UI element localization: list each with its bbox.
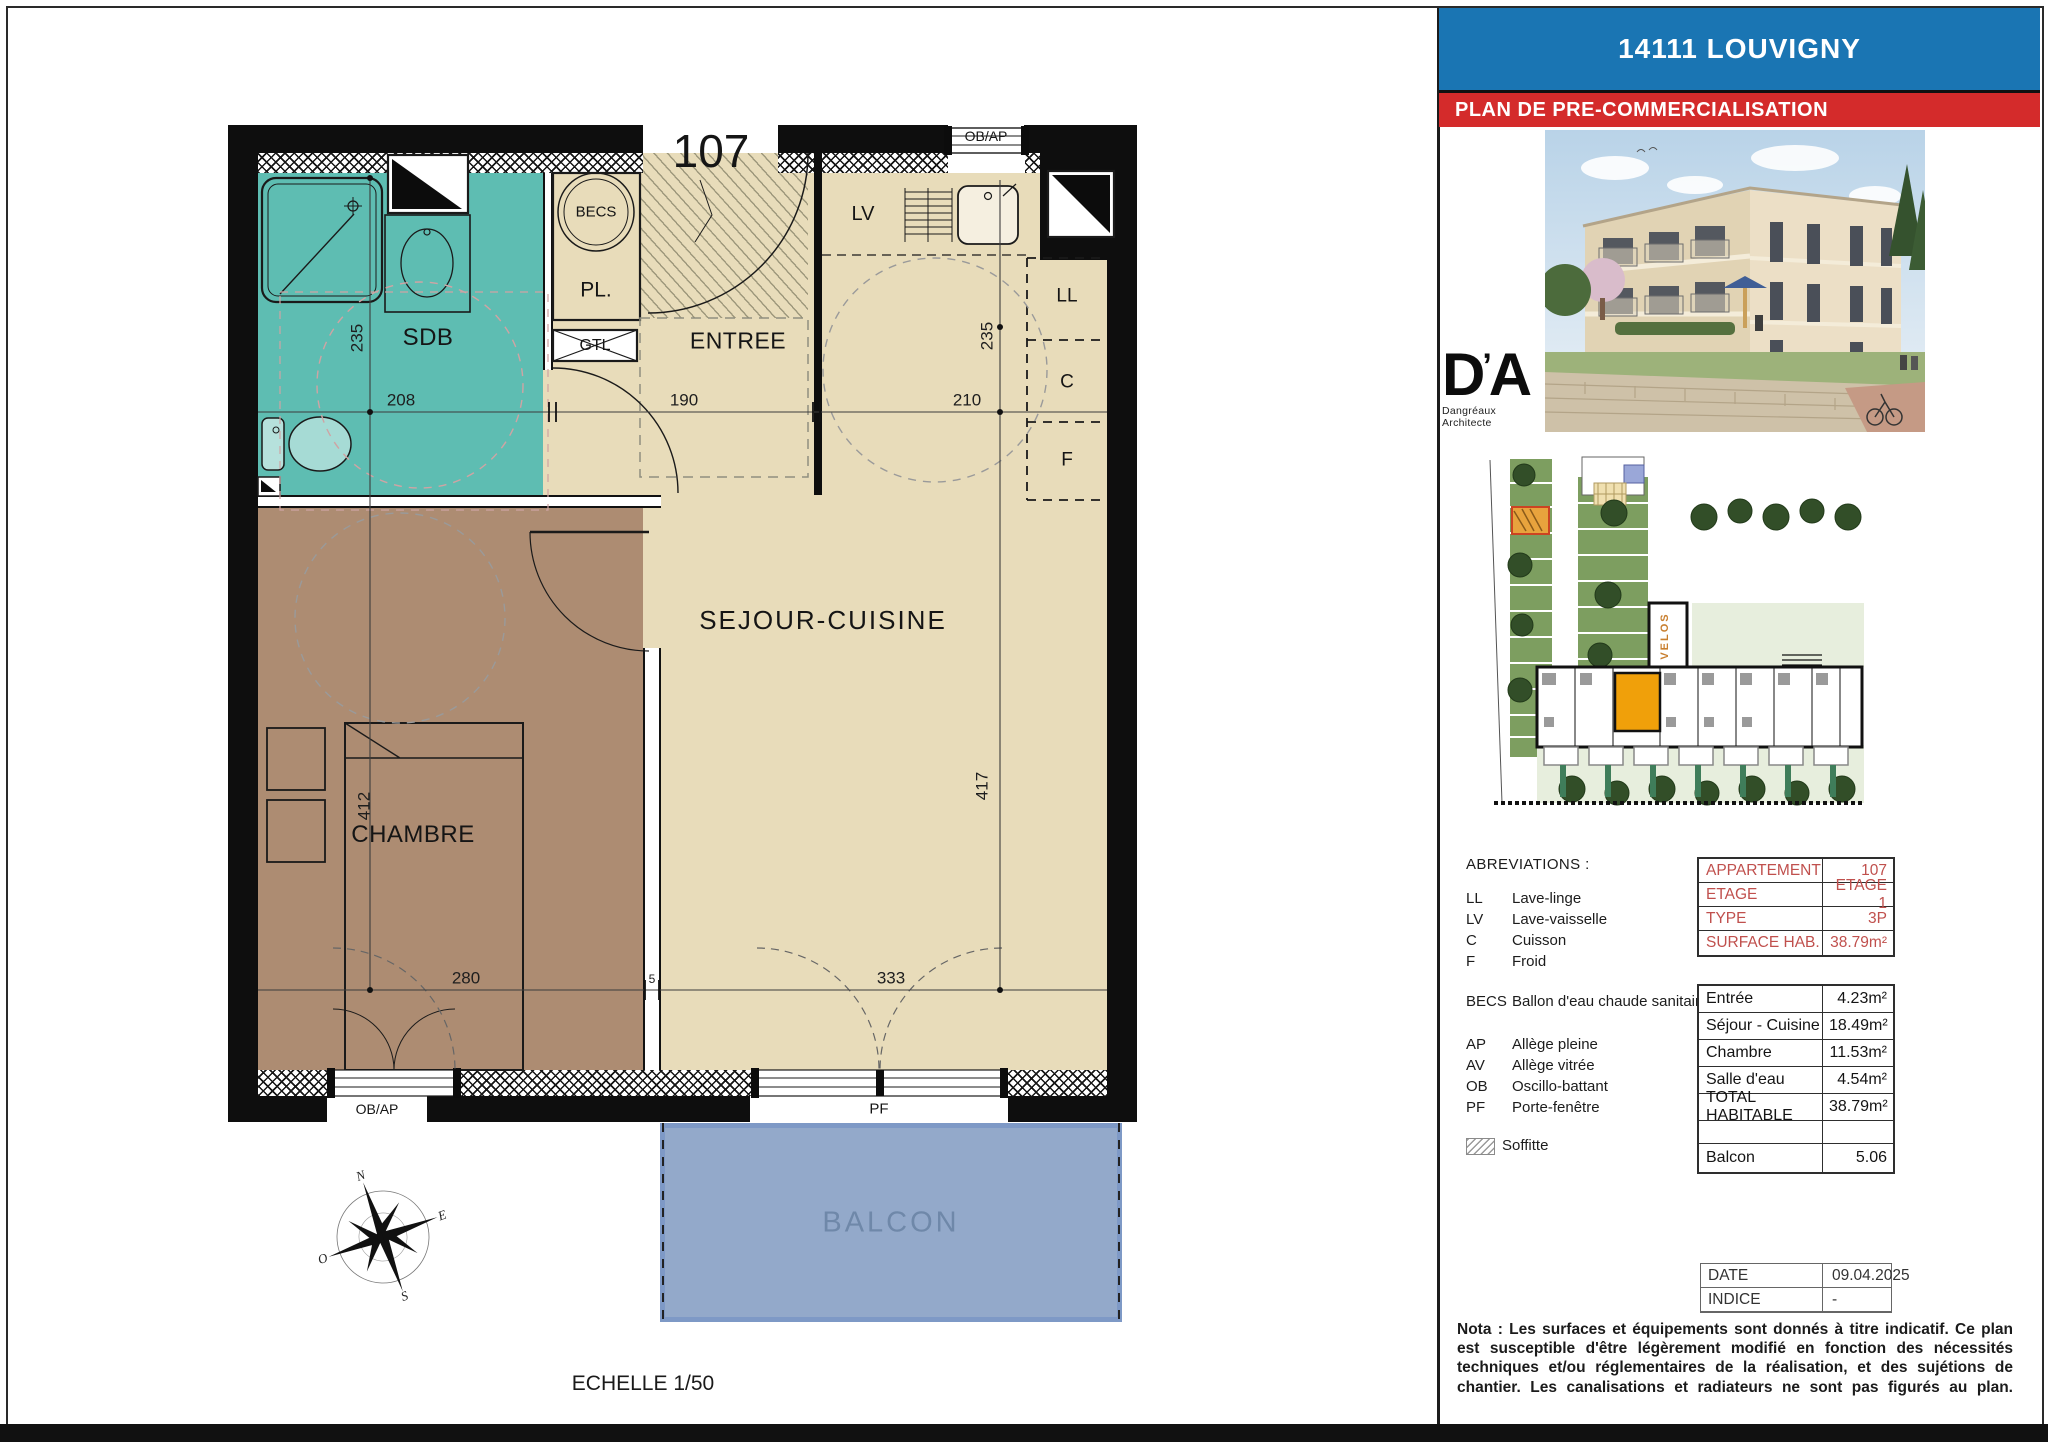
project-title-bar: 14111 LOUVIGNY: [1439, 8, 2040, 90]
wall-right: [1107, 125, 1137, 1122]
dim-chambre-height: 412: [356, 792, 373, 820]
svg-text:N: N: [353, 1167, 368, 1184]
soffitte-hatch-area: [640, 153, 808, 318]
dim-partition: 5: [649, 973, 656, 985]
gtl-label: GTL: [579, 338, 610, 354]
room-label-chambre: CHAMBRE: [351, 823, 475, 847]
abbr-c: CCuisson: [1466, 932, 1566, 949]
table-row: TYPE3P: [1699, 907, 1893, 931]
table-row: Entrée4.23m²: [1699, 986, 1893, 1013]
nota-disclaimer: Nota : Les surfaces et équipements sont …: [1457, 1320, 2013, 1397]
partition-sdb-chambre: [258, 495, 661, 508]
soffitte-legend-label: Soffitte: [1502, 1137, 1548, 1154]
soffitte-hatch-icon: [1466, 1138, 1495, 1155]
building-photo: [1545, 130, 1925, 432]
dim-kitchen-height: 235: [979, 322, 996, 350]
becs-label: BECS: [576, 205, 617, 220]
ll-label: LL: [1056, 287, 1077, 306]
table-row: Balcon5.06: [1699, 1144, 1893, 1172]
froid-label: F: [1061, 451, 1073, 470]
project-title: 14111 LOUVIGNY: [1618, 33, 1861, 65]
abbreviations-heading: ABREVIATIONS :: [1466, 856, 1590, 873]
room-label-sejour: SEJOUR-CUISINE: [699, 607, 947, 633]
svg-text:O: O: [316, 1250, 331, 1268]
wall-left: [228, 125, 258, 1122]
insulation-hatch: [1002, 1070, 1107, 1096]
plan-page: BALCON: [0, 0, 2048, 1442]
wall-top: [778, 125, 950, 153]
plan-subtitle: PLAN DE PRE-COMMERCIALISATION: [1455, 99, 1828, 122]
site-plan: VELOS: [1482, 455, 1882, 807]
svg-text:VELOS: VELOS: [1659, 612, 1671, 659]
table-row: ETAGEETAGE 1: [1699, 883, 1893, 907]
date-indice-table: DATE09.04.2025 INDICE-: [1700, 1263, 1892, 1313]
room-sdb-floor: [258, 173, 543, 495]
table-row: TOTAL HABITABLE38.79m²: [1699, 1094, 1893, 1121]
abbr-becs: BECSBallon d'eau chaude sanitaire: [1466, 993, 1708, 1010]
dim-sejour-height: 417: [974, 772, 991, 800]
balcony-label: BALCON: [822, 1208, 959, 1237]
dim-chambre-width: 280: [452, 970, 480, 987]
svg-text:E: E: [435, 1207, 449, 1224]
dim-sejour-width: 210: [953, 392, 981, 409]
partition-chambre-sejour: [643, 648, 661, 1070]
abbr-av: AVAllège vitrée: [1466, 1057, 1595, 1074]
window-label-obap-bottom: OB/AP: [356, 1102, 399, 1116]
abbr-pf: PFPorte-fenêtre: [1466, 1099, 1600, 1116]
surfaces-table: Entrée4.23m² Séjour - Cuisine18.49m² Cha…: [1697, 984, 1895, 1174]
table-row: SURFACE HAB.38.79m²: [1699, 931, 1893, 955]
logo-name: Dangréaux Architecte: [1442, 405, 1546, 429]
table-row: Séjour - Cuisine18.49m²: [1699, 1013, 1893, 1040]
page-bottom-bar: [0, 1424, 2048, 1442]
table-row: Chambre11.53m²: [1699, 1040, 1893, 1067]
abbr-f: FFroid: [1466, 953, 1546, 970]
room-chambre-floor: [258, 508, 643, 1070]
panel-divider: [1437, 8, 1440, 1424]
table-row: DATE09.04.2025: [1701, 1264, 1891, 1288]
abbr-ll: LLLave-linge: [1466, 890, 1581, 907]
compass-rose-icon: N E S O: [313, 1167, 453, 1307]
abbr-ob: OBOscillo-battant: [1466, 1078, 1608, 1095]
cuisson-label: C: [1060, 373, 1074, 392]
partition-sdb-entree: [543, 173, 553, 370]
window-label-obap-top: OB/AP: [965, 129, 1008, 143]
scale-label: ECHELLE 1/50: [553, 1372, 733, 1396]
architect-logo: D’A Dangréaux Architecte: [1442, 346, 1546, 429]
lv-label: LV: [852, 204, 875, 224]
plan-subtitle-bar: PLAN DE PRE-COMMERCIALISATION: [1439, 90, 2040, 127]
partition-entree-cuisine: [814, 153, 822, 495]
abbr-ap: APAllège pleine: [1466, 1036, 1598, 1053]
svg-text:S: S: [399, 1287, 411, 1303]
insulation-hatch: [778, 153, 948, 173]
insulation-hatch: [258, 153, 643, 173]
insulation-hatch: [455, 1070, 757, 1096]
wall-top: [228, 125, 643, 153]
apartment-info-table: APPARTEMENT107 ETAGEETAGE 1 TYPE3P SURFA…: [1697, 857, 1895, 957]
dim-sdb-height: 235: [349, 324, 366, 352]
table-row: INDICE-: [1701, 1288, 1891, 1312]
dim-sejour-width-bottom: 333: [877, 970, 905, 987]
insulation-hatch: [258, 1070, 333, 1096]
table-row-empty: [1699, 1121, 1893, 1144]
room-label-sdb: SDB: [403, 326, 454, 350]
abbr-lv: LVLave-vaisselle: [1466, 911, 1607, 928]
window-label-pf: PF: [869, 1102, 888, 1117]
balcony: BALCON: [660, 1123, 1122, 1322]
apartment-number: 107: [673, 128, 750, 174]
logo-mark: D’A: [1442, 346, 1546, 403]
room-label-entree: ENTREE: [690, 330, 786, 353]
dim-entree-width: 190: [670, 392, 698, 409]
placard-label: PL.: [580, 280, 612, 301]
dim-sdb-width: 208: [387, 392, 415, 409]
